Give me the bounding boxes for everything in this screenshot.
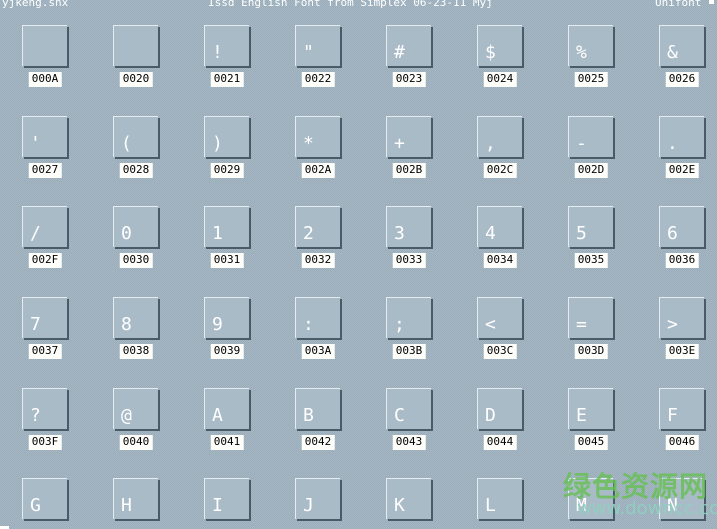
glyph-preview-box[interactable]: [22, 25, 67, 66]
glyph-char: E: [576, 406, 587, 426]
glyph-preview-box[interactable]: @: [113, 388, 158, 429]
glyph-preview-box[interactable]: J: [295, 478, 340, 519]
glyph-char: +: [394, 134, 405, 154]
glyph-preview-box[interactable]: H: [113, 478, 158, 519]
glyph-cell: 40034: [477, 206, 525, 247]
glyph-char: A: [212, 406, 223, 426]
glyph-cell: 50035: [568, 206, 616, 247]
glyph-char: L: [485, 496, 496, 516]
glyph-cell: <003C: [477, 297, 525, 338]
glyph-preview-box[interactable]: 3: [386, 206, 431, 247]
glyph-code-label: 0027: [29, 163, 62, 178]
glyph-code-label: 0026: [666, 72, 699, 87]
glyph-cell: '0027: [22, 116, 70, 157]
glyph-char: /: [30, 224, 41, 244]
glyph-cell: 000A: [22, 25, 70, 66]
glyph-code-label: 002B: [393, 163, 426, 178]
glyph-char: H: [121, 496, 132, 516]
glyph-char: 5: [576, 224, 587, 244]
glyph-cell: -002D: [568, 116, 616, 157]
glyph-code-label: 0028: [120, 163, 153, 178]
font-description: Issd English Font from Simplex 06-23-11 …: [208, 0, 493, 9]
glyph-preview-box[interactable]: E: [568, 388, 613, 429]
glyph-char: 1: [212, 224, 223, 244]
glyph-cell: J: [295, 478, 343, 519]
glyph-preview-box[interactable]: F: [659, 388, 704, 429]
glyph-char: =: [576, 315, 587, 335]
glyph-char: &: [667, 43, 678, 63]
glyph-preview-box[interactable]: #: [386, 25, 431, 66]
glyph-preview-box[interactable]: 7: [22, 297, 67, 338]
glyph-preview-box[interactable]: I: [204, 478, 249, 519]
font-mode-label: Unifont: [655, 0, 701, 9]
glyph-preview-box[interactable]: ): [204, 116, 249, 157]
glyph-char: K: [394, 496, 405, 516]
glyph-char: D: [485, 406, 496, 426]
glyph-char: 2: [303, 224, 314, 244]
glyph-code-label: 002A: [302, 163, 335, 178]
glyph-preview-box[interactable]: =: [568, 297, 613, 338]
glyph-code-label: 0022: [302, 72, 335, 87]
glyph-preview-box[interactable]: +: [386, 116, 431, 157]
glyph-preview-box[interactable]: (: [113, 116, 158, 157]
glyph-preview-box[interactable]: %: [568, 25, 613, 66]
glyph-char: -: [576, 134, 587, 154]
glyph-cell: &0026: [659, 25, 707, 66]
glyph-code-label: 002C: [484, 163, 517, 178]
glyph-cell: F0046: [659, 388, 707, 429]
glyph-code-label: 002F: [29, 253, 62, 268]
glyph-code-label: 0021: [211, 72, 244, 87]
glyph-cell: >003E: [659, 297, 707, 338]
glyph-preview-box[interactable]: $: [477, 25, 522, 66]
glyph-char: @: [121, 406, 132, 426]
glyph-preview-box[interactable]: D: [477, 388, 522, 429]
glyph-char: G: [30, 496, 41, 516]
glyph-preview-box[interactable]: 5: [568, 206, 613, 247]
glyph-code-label: 0025: [575, 72, 608, 87]
glyph-cell: ,002C: [477, 116, 525, 157]
glyph-preview-box[interactable]: C: [386, 388, 431, 429]
glyph-cell: K: [386, 478, 434, 519]
glyph-cell: C0043: [386, 388, 434, 429]
glyph-cell: 30033: [386, 206, 434, 247]
glyph-cell: #0023: [386, 25, 434, 66]
glyph-cell: I: [204, 478, 252, 519]
glyph-code-label: 0023: [393, 72, 426, 87]
glyph-cell: $0024: [477, 25, 525, 66]
glyph-char: 7: [30, 315, 41, 335]
glyph-char: :: [303, 315, 314, 335]
glyph-code-label: 003B: [393, 344, 426, 359]
glyph-char: !: [212, 43, 223, 63]
glyph-preview-box[interactable]: G: [22, 478, 67, 519]
glyph-char: #: [394, 43, 405, 63]
glyph-char: N: [667, 496, 678, 516]
glyph-cell: ?003F: [22, 388, 70, 429]
glyph-char: 3: [394, 224, 405, 244]
glyph-code-label: 0037: [29, 344, 62, 359]
glyph-code-label: 0041: [211, 435, 244, 450]
glyph-char: 4: [485, 224, 496, 244]
glyph-char: 8: [121, 315, 132, 335]
glyph-cell: D0044: [477, 388, 525, 429]
glyph-cell: L: [477, 478, 525, 519]
glyph-code-label: 0035: [575, 253, 608, 268]
glyph-char: I: [212, 496, 223, 516]
glyph-cell: 90039: [204, 297, 252, 338]
glyph-cell: 60036: [659, 206, 707, 247]
glyph-code-label: 0030: [120, 253, 153, 268]
glyph-char: (: [121, 134, 132, 154]
glyph-cell: E0045: [568, 388, 616, 429]
glyph-char: ;: [394, 315, 405, 335]
glyph-cell: M: [568, 478, 616, 519]
glyph-char: 9: [212, 315, 223, 335]
glyph-code-label: 0033: [393, 253, 426, 268]
glyph-preview-box[interactable]: -: [568, 116, 613, 157]
glyph-preview-box[interactable]: ': [22, 116, 67, 157]
glyph-preview-box[interactable]: <: [477, 297, 522, 338]
glyph-char: ': [30, 134, 41, 154]
glyph-char: ": [303, 43, 314, 63]
glyph-cell: 20032: [295, 206, 343, 247]
glyph-cell: 00030: [113, 206, 161, 247]
glyph-char: C: [394, 406, 405, 426]
glyph-char: F: [667, 406, 678, 426]
glyph-char: 6: [667, 224, 678, 244]
glyph-preview-box[interactable]: ;: [386, 297, 431, 338]
glyph-cell: 70037: [22, 297, 70, 338]
glyph-code-label: 0045: [575, 435, 608, 450]
font-viewer-window: yjkeng.shx Issd English Font from Simple…: [0, 0, 717, 529]
glyph-char: %: [576, 43, 587, 63]
glyph-preview-box[interactable]: *: [295, 116, 340, 157]
glyph-char: J: [303, 496, 314, 516]
glyph-cell: H: [113, 478, 161, 519]
glyph-preview-box[interactable]: A: [204, 388, 249, 429]
glyph-char: ): [212, 134, 223, 154]
glyph-cell: )0029: [204, 116, 252, 157]
glyph-code-label: 0043: [393, 435, 426, 450]
glyph-char: <: [485, 315, 496, 335]
glyph-cell: *002A: [295, 116, 343, 157]
glyph-code-label: 0029: [211, 163, 244, 178]
glyph-preview-box[interactable]: 6: [659, 206, 704, 247]
glyph-preview-box[interactable]: 8: [113, 297, 158, 338]
glyph-cell: (0028: [113, 116, 161, 157]
glyph-cell: +002B: [386, 116, 434, 157]
glyph-cell: 10031: [204, 206, 252, 247]
glyph-code-label: 003C: [484, 344, 517, 359]
glyph-code-label: 0038: [120, 344, 153, 359]
glyph-char: .: [667, 134, 678, 154]
glyph-preview-box[interactable]: 4: [477, 206, 522, 247]
glyph-cell: /002F: [22, 206, 70, 247]
glyph-cell: !0021: [204, 25, 252, 66]
glyph-code-label: 0044: [484, 435, 517, 450]
glyph-preview-box[interactable]: &: [659, 25, 704, 66]
glyph-code-label: 0032: [302, 253, 335, 268]
glyph-char: B: [303, 406, 314, 426]
glyph-code-label: 002E: [666, 163, 699, 178]
glyph-cell: 80038: [113, 297, 161, 338]
glyph-code-label: 0034: [484, 253, 517, 268]
glyph-cell: G: [22, 478, 70, 519]
glyph-preview-box[interactable]: [113, 25, 158, 66]
glyph-code-label: 002D: [575, 163, 608, 178]
glyph-preview-box[interactable]: /: [22, 206, 67, 247]
glyph-cell: :003A: [295, 297, 343, 338]
glyph-preview-box[interactable]: 0: [113, 206, 158, 247]
glyph-preview-box[interactable]: :: [295, 297, 340, 338]
glyph-preview-box[interactable]: 2: [295, 206, 340, 247]
glyph-code-label: 003F: [29, 435, 62, 450]
glyph-code-label: 0024: [484, 72, 517, 87]
font-file-name: yjkeng.shx: [2, 0, 68, 9]
glyph-char: >: [667, 315, 678, 335]
glyph-cell: .002E: [659, 116, 707, 157]
glyph-preview-box[interactable]: N: [659, 478, 704, 519]
glyph-char: ?: [30, 406, 41, 426]
glyph-code-label: 0036: [666, 253, 699, 268]
glyph-code-label: 0046: [666, 435, 699, 450]
glyph-char: *: [303, 134, 314, 154]
glyph-preview-box[interactable]: L: [477, 478, 522, 519]
glyph-preview-box[interactable]: 9: [204, 297, 249, 338]
glyph-code-label: 0020: [120, 72, 153, 87]
glyph-char: $: [485, 43, 496, 63]
glyph-preview-box[interactable]: ": [295, 25, 340, 66]
glyph-preview-box[interactable]: ,: [477, 116, 522, 157]
glyph-cell: @0040: [113, 388, 161, 429]
glyph-cell: A0041: [204, 388, 252, 429]
screen-artifact: [709, 0, 714, 4]
glyph-cell: N: [659, 478, 707, 519]
glyph-code-label: 003D: [575, 344, 608, 359]
glyph-code-label: 003E: [666, 344, 699, 359]
glyph-code-label: 003A: [302, 344, 335, 359]
glyph-code-label: 0031: [211, 253, 244, 268]
glyph-code-label: 0039: [211, 344, 244, 359]
glyph-code-label: 0040: [120, 435, 153, 450]
glyph-char: ,: [485, 134, 496, 154]
glyph-preview-box[interactable]: !: [204, 25, 249, 66]
glyph-preview-box[interactable]: B: [295, 388, 340, 429]
glyph-code-label: 0042: [302, 435, 335, 450]
glyph-preview-box[interactable]: 1: [204, 206, 249, 247]
glyph-cell: %0025: [568, 25, 616, 66]
glyph-char: M: [576, 496, 587, 516]
glyph-preview-box[interactable]: >: [659, 297, 704, 338]
glyph-code-label: 000A: [29, 72, 62, 87]
glyph-cell: B0042: [295, 388, 343, 429]
glyph-cell: "0022: [295, 25, 343, 66]
glyph-cell: ;003B: [386, 297, 434, 338]
glyph-preview-box[interactable]: M: [568, 478, 613, 519]
glyph-preview-box[interactable]: K: [386, 478, 431, 519]
glyph-preview-box[interactable]: ?: [22, 388, 67, 429]
glyph-cell: =003D: [568, 297, 616, 338]
glyph-preview-box[interactable]: .: [659, 116, 704, 157]
glyph-cell: 0020: [113, 25, 161, 66]
glyph-char: 0: [121, 224, 132, 244]
